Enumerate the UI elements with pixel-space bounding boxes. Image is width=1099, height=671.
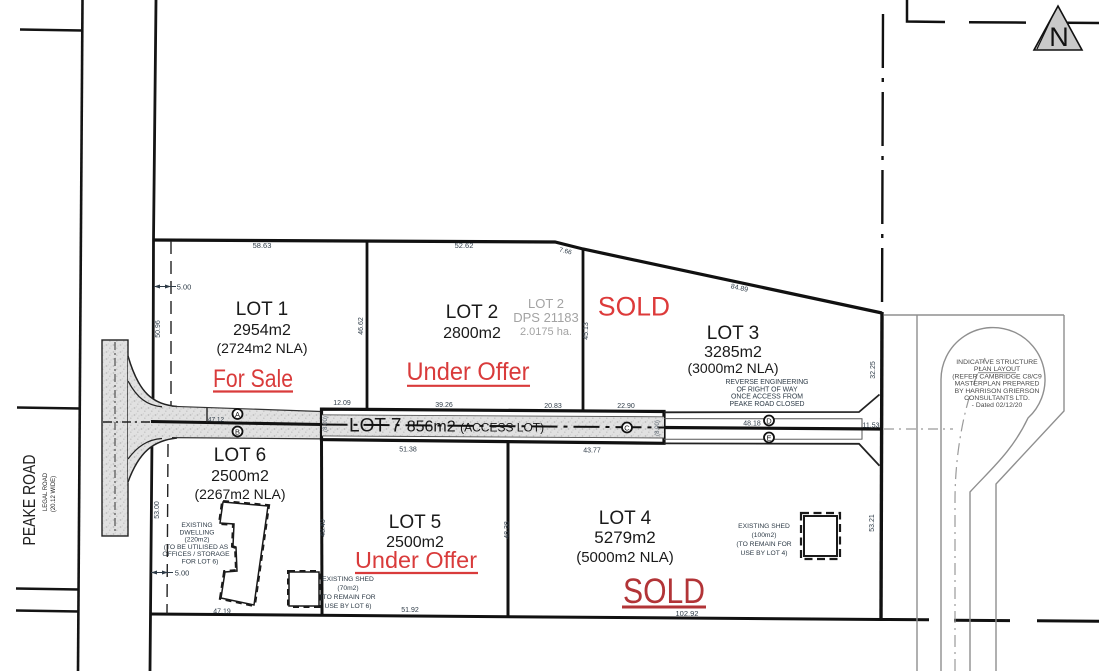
svg-text:B: B	[235, 427, 240, 436]
svg-text:LOT 1: LOT 1	[236, 299, 288, 320]
svg-text:2500m2: 2500m2	[211, 468, 269, 485]
svg-text:OFFICES / STORAGE: OFFICES / STORAGE	[162, 551, 230, 558]
svg-text:43.77: 43.77	[583, 448, 601, 455]
svg-text:LEGAL ROAD: LEGAL ROAD	[43, 472, 49, 511]
svg-text:(TO BE UTILISED AS: (TO BE UTILISED AS	[164, 544, 229, 551]
svg-text:CONSULTANTS LTD.: CONSULTANTS LTD.	[964, 395, 1030, 402]
svg-text:N: N	[1049, 22, 1069, 52]
svg-text:D: D	[766, 416, 772, 425]
svg-text:LOT 6: LOT 6	[214, 445, 266, 466]
svg-text:11.53: 11.53	[863, 423, 880, 430]
svg-text:Under Offer: Under Offer	[407, 358, 530, 386]
svg-text:(100m2): (100m2)	[752, 532, 777, 539]
svg-text:5.00: 5.00	[175, 569, 190, 578]
svg-text:52.62: 52.62	[455, 241, 474, 250]
svg-text:EXISTING SHED: EXISTING SHED	[738, 523, 790, 530]
svg-text:47.12: 47.12	[208, 417, 225, 424]
svg-text:2.0175 ha.: 2.0175 ha.	[520, 326, 572, 338]
svg-text:53.00: 53.00	[154, 501, 161, 519]
svg-text:(8.00): (8.00)	[655, 420, 661, 436]
svg-text:58.63: 58.63	[253, 241, 272, 250]
svg-text:REVERSE ENGINEERING: REVERSE ENGINEERING	[725, 379, 808, 386]
svg-text:C: C	[624, 423, 630, 432]
svg-text:5.00: 5.00	[177, 283, 192, 292]
svg-text:(REFER CAMBRIDGE C8/C9: (REFER CAMBRIDGE C8/C9	[952, 373, 1042, 380]
svg-text:(2267m2 NLA): (2267m2 NLA)	[194, 486, 285, 502]
svg-text:(20.12 WIDE): (20.12 WIDE)	[51, 476, 57, 512]
svg-text:SOLD: SOLD	[623, 572, 705, 611]
svg-text:53.21: 53.21	[869, 514, 876, 532]
svg-text:PEAKE ROAD CLOSED: PEAKE ROAD CLOSED	[729, 401, 804, 408]
svg-text:48.40: 48.40	[320, 519, 327, 537]
svg-text:51.38: 51.38	[399, 447, 417, 454]
svg-text:2954m2: 2954m2	[233, 322, 291, 339]
svg-text:OF RIGHT OF WAY: OF RIGHT OF WAY	[736, 386, 798, 393]
svg-text:50.96: 50.96	[155, 320, 162, 338]
svg-text:48.18: 48.18	[743, 421, 761, 428]
svg-text:(3000m2 NLA): (3000m2 NLA)	[687, 360, 778, 376]
svg-text:For Sale: For Sale	[213, 365, 293, 393]
svg-text:ONCE ACCESS FROM: ONCE ACCESS FROM	[731, 394, 803, 401]
svg-text:(70m2): (70m2)	[337, 585, 358, 592]
svg-text:LOT 3: LOT 3	[707, 323, 759, 344]
svg-text:Under Offer: Under Offer	[355, 547, 477, 573]
svg-text:48.38: 48.38	[504, 521, 511, 539]
svg-text:102.92: 102.92	[676, 609, 699, 618]
svg-text:LOT 5: LOT 5	[389, 512, 441, 533]
svg-text:EXISTING SHED: EXISTING SHED	[322, 576, 374, 583]
svg-text:(TO REMAIN FOR: (TO REMAIN FOR	[736, 541, 791, 548]
svg-text:45.13: 45.13	[583, 322, 590, 340]
svg-text:SOLD: SOLD	[598, 292, 670, 322]
svg-text:3285m2: 3285m2	[704, 344, 762, 361]
svg-text:32.25: 32.25	[870, 361, 877, 379]
svg-text:2800m2: 2800m2	[443, 325, 501, 342]
svg-text:INDICATIVE STRUCTURE: INDICATIVE STRUCTURE	[956, 359, 1038, 366]
svg-text:20.83: 20.83	[544, 403, 562, 410]
svg-text:USE BY LOT 6): USE BY LOT 6)	[325, 603, 372, 610]
svg-text:39.26: 39.26	[435, 402, 453, 409]
svg-text:22.90: 22.90	[617, 403, 635, 410]
svg-text:(8.00): (8.00)	[323, 416, 329, 432]
svg-text:USE BY LOT 4): USE BY LOT 4)	[741, 550, 788, 557]
svg-text:(TO REMAIN FOR: (TO REMAIN FOR	[320, 594, 375, 601]
svg-text:- Dated 02/12/20: - Dated 02/12/20	[972, 402, 1023, 409]
svg-text:E: E	[766, 433, 771, 442]
svg-text:PEAKE ROAD: PEAKE ROAD	[19, 455, 39, 546]
svg-text:EXISTING: EXISTING	[181, 522, 212, 529]
svg-text:(220m2): (220m2)	[185, 537, 210, 544]
svg-text:12.09: 12.09	[333, 400, 351, 407]
svg-text:LOT 2: LOT 2	[528, 296, 564, 311]
svg-text:LOT 4: LOT 4	[599, 508, 652, 529]
svg-text:51.92: 51.92	[401, 607, 419, 614]
svg-text:(2724m2 NLA): (2724m2 NLA)	[216, 340, 307, 356]
svg-text:A: A	[235, 410, 240, 419]
svg-text:PLAN LAYOUT: PLAN LAYOUT	[974, 366, 1020, 373]
svg-text:DWELLING: DWELLING	[180, 529, 215, 536]
svg-text:FOR LOT 6): FOR LOT 6)	[182, 559, 219, 566]
svg-text:46.62: 46.62	[358, 317, 365, 335]
svg-text:(5000m2 NLA): (5000m2 NLA)	[576, 549, 674, 566]
svg-text:47.19: 47.19	[213, 609, 231, 616]
svg-text:MASTERPLAN PREPARED: MASTERPLAN PREPARED	[955, 381, 1040, 388]
svg-text:5279m2: 5279m2	[594, 528, 655, 547]
svg-text:BY HARRISON GRIERSON: BY HARRISON GRIERSON	[955, 388, 1040, 395]
svg-text:LOT 2: LOT 2	[446, 302, 498, 323]
svg-text:DPS 21183: DPS 21183	[513, 310, 579, 325]
